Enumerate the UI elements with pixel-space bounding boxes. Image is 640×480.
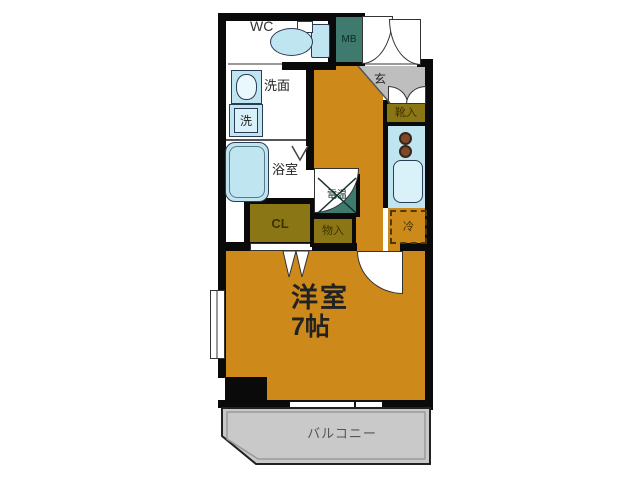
bath-divider-line	[226, 139, 306, 141]
balcony-label: バルコニー	[282, 427, 402, 440]
stove-burner-top	[399, 132, 412, 145]
shoe-box-label: 靴入	[395, 108, 417, 119]
storage-label: 物入	[322, 226, 344, 237]
fridge-space: 冷	[390, 210, 427, 244]
wall-room-top-a	[218, 243, 250, 251]
wc-door-line	[228, 63, 282, 65]
closet-door-track	[250, 243, 314, 251]
floor-plan: MB CL 電温 物入 靴入 冷	[0, 0, 640, 480]
entrance-label: 玄	[374, 73, 386, 85]
washer-label: 洗	[240, 115, 252, 127]
bathtub-inner-line	[229, 146, 265, 198]
wall-room-top-c	[400, 243, 428, 251]
wall-washblock-right-upper	[306, 62, 314, 170]
balcony-window	[290, 400, 382, 412]
main-room-name: 洋室	[291, 285, 349, 312]
wc-label: WC	[250, 19, 273, 33]
left-window	[210, 290, 225, 359]
stove-burner-bottom	[399, 145, 412, 158]
main-room-size: 7帖	[291, 315, 349, 340]
wall-room-top-b	[312, 243, 357, 251]
washbasin-sink	[236, 74, 257, 100]
bathtub	[225, 142, 269, 202]
washbasin-label: 洗面	[264, 79, 290, 92]
toilet-tank	[311, 24, 330, 58]
washer-space: 洗	[229, 104, 263, 137]
main-room-title: 洋室 7帖	[291, 285, 349, 340]
washbasin-unit	[231, 70, 262, 104]
storage: 物入	[314, 219, 352, 243]
water-heater-label: 電温	[327, 191, 347, 201]
balcony-window-tick	[354, 402, 356, 407]
pillar-bottom-left	[225, 377, 267, 408]
entry-sill-line	[365, 63, 417, 65]
entry-door-leaf-right	[389, 19, 421, 65]
meter-box: MB	[336, 17, 362, 62]
shoe-box: 靴入	[387, 104, 425, 122]
wall-bottom-b	[382, 400, 433, 408]
closet: CL	[250, 204, 310, 242]
toilet-bowl	[270, 28, 313, 56]
bathroom-label: 浴室	[272, 163, 298, 176]
left-window-sash-line	[216, 291, 218, 358]
meter-box-label: MB	[342, 35, 357, 45]
washer-inner: 洗	[234, 108, 258, 133]
closet-label: CL	[271, 217, 288, 230]
kitchen-sink	[393, 160, 423, 203]
fridge-label: 冷	[403, 222, 414, 233]
